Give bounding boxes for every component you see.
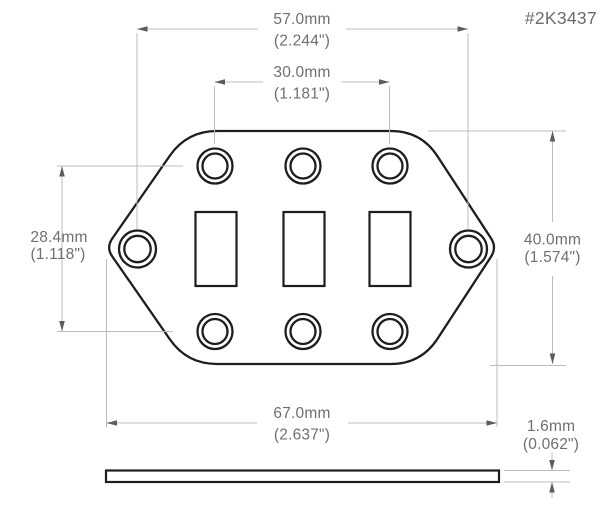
arrowhead-down <box>549 460 555 471</box>
dimension-label-inch: (1.574") <box>524 249 580 266</box>
dimension-label-inch: (1.181") <box>274 86 330 103</box>
arrowhead-up <box>59 166 65 177</box>
arrowhead-left <box>137 26 148 32</box>
dimension-label-mm: 57.0mm <box>273 11 330 28</box>
string-hole-top-right <box>373 149 408 184</box>
side-view-plate-strip <box>106 471 499 483</box>
arrowhead-left <box>107 420 118 426</box>
dimension-label-inch: (2.637") <box>274 427 330 444</box>
string-hole-top-left <box>198 149 233 184</box>
technical-drawing-page: 57.0mm (2.244") 30.0mm (1.181") 28.4mm (… <box>0 0 600 517</box>
arrowhead-down <box>550 354 556 365</box>
dimension-thickness: 1.6mm (0.062") <box>504 418 579 498</box>
dimension-hole-span-width: 57.0mm (2.244") <box>137 11 468 229</box>
dimension-label-inch: (1.118") <box>30 246 85 263</box>
arrowhead-up <box>550 131 556 142</box>
arrowhead-up <box>549 482 555 493</box>
string-hole-bottom-left <box>198 314 233 349</box>
arrowhead-right <box>458 26 469 32</box>
slot-right <box>370 212 411 286</box>
string-hole-bottom-right <box>373 314 408 349</box>
hole-inner-ring <box>203 319 228 344</box>
hole-inner-ring <box>203 154 228 179</box>
hole-inner-ring <box>378 154 403 179</box>
dimension-label-inch: (2.244") <box>274 33 330 50</box>
hole-inner-ring <box>291 154 316 179</box>
dimension-label-mm: 67.0mm <box>273 405 330 422</box>
string-hole-top-center <box>286 149 321 184</box>
arrowhead-down <box>59 321 65 332</box>
dimension-label-inch: (0.062") <box>523 436 579 453</box>
side-hole-left <box>119 231 156 268</box>
hole-inner-ring <box>455 236 481 262</box>
hole-inner-ring <box>378 319 403 344</box>
arrowhead-right <box>379 79 390 85</box>
dimension-label-mm: 1.6mm <box>527 418 575 435</box>
hole-inner-ring <box>291 319 316 344</box>
dimension-label-mm: 30.0mm <box>273 64 330 81</box>
hole-inner-ring <box>124 236 150 262</box>
dimension-label-mm: 40.0mm <box>524 232 581 249</box>
side-hole-right <box>450 231 487 268</box>
technical-drawing: 57.0mm (2.244") 30.0mm (1.181") 28.4mm (… <box>0 0 600 517</box>
slot-left <box>196 212 237 286</box>
side-view <box>106 471 499 483</box>
arrowhead-right <box>487 420 498 426</box>
part-number: #2K3437 <box>525 8 597 28</box>
slot-center <box>284 212 325 286</box>
string-hole-bottom-center <box>286 314 321 349</box>
dimension-label-mm: 28.4mm <box>30 229 87 246</box>
arrowhead-left <box>215 79 226 85</box>
